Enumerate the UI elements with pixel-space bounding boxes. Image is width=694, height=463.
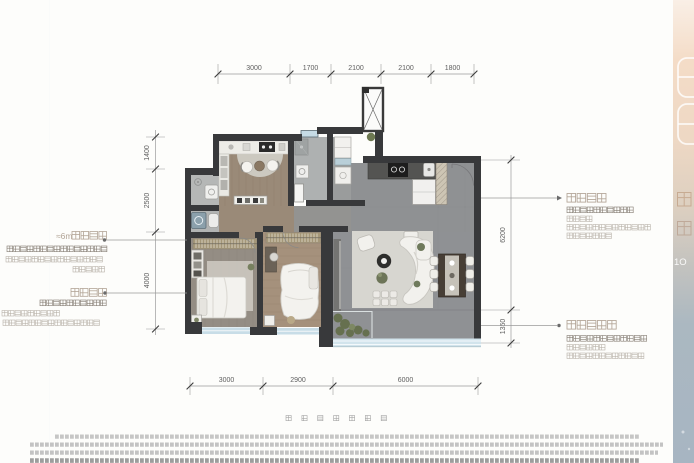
svg-text:≈6m: ≈6m xyxy=(56,231,72,241)
svg-text:1350: 1350 xyxy=(500,319,507,335)
svg-text:1800: 1800 xyxy=(445,65,461,72)
svg-text:2500: 2500 xyxy=(144,193,151,209)
svg-text:1700: 1700 xyxy=(303,65,319,72)
svg-text:1400: 1400 xyxy=(144,145,151,161)
svg-text:1O: 1O xyxy=(674,257,687,268)
svg-text:2100: 2100 xyxy=(398,65,414,72)
svg-text:2900: 2900 xyxy=(290,377,306,384)
svg-text:3000: 3000 xyxy=(219,377,235,384)
svg-text:6200: 6200 xyxy=(500,227,507,243)
svg-text:4000: 4000 xyxy=(144,273,151,289)
svg-text:6000: 6000 xyxy=(398,377,414,384)
svg-text:2100: 2100 xyxy=(348,65,364,72)
svg-text:3000: 3000 xyxy=(246,65,262,72)
